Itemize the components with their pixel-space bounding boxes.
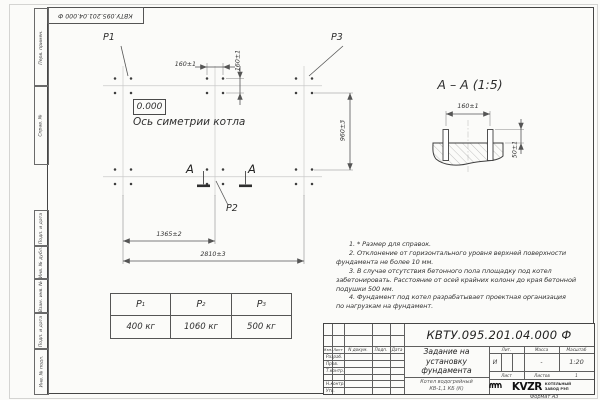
scale-label: Масштаб: [559, 346, 594, 353]
load-value-p3: 500 кг: [232, 316, 291, 338]
dim-1365: 1365±2: [139, 231, 199, 238]
col-podp: Подп.: [372, 346, 390, 353]
section-title: А – А (1:5): [430, 77, 510, 92]
margin-stamp-sprav-n: Справ. №: [34, 85, 49, 165]
load-point-p3-label: P3: [331, 32, 343, 43]
dim-960: 960±3: [340, 117, 347, 145]
document-title: Задание на установку фундамента: [404, 346, 489, 377]
load-table-header-row: P1 P2 P3: [111, 294, 291, 316]
load-point-p2-label: P2: [226, 203, 238, 214]
row-razrab: Разраб.: [324, 353, 346, 360]
sheet-label: Лист: [489, 371, 524, 379]
col-data: Дата: [390, 346, 404, 353]
load-point-p1-label: P1: [103, 32, 115, 43]
cut-letter-right: А: [248, 162, 256, 176]
cut-letter-left: А: [186, 162, 194, 176]
company-logo: KVZR КОТЕЛЬНЫЙ ЗАВОД РЭП: [489, 379, 594, 394]
margin-stamp-inv-dubl: Инв. № дубл.: [34, 245, 49, 280]
kvzr-logo-text: KVZR: [512, 381, 542, 393]
symmetry-axis-label: Ось симетрии котла: [133, 116, 245, 128]
sheets-label: Листов: [527, 371, 557, 379]
kvzr-spring-icon: [489, 379, 502, 389]
title-block: КВТУ.095.201.04.000 Ф Изм. Лист N докум.…: [323, 323, 595, 395]
format-note: Формат А3: [530, 394, 558, 400]
note-line: фундамента не более 10 мм.: [336, 258, 593, 267]
top-designation-text: КВТУ.095.201.04.000 Ф: [58, 12, 133, 19]
scale-value: 1:20: [559, 353, 594, 371]
load-table-header-p2: P2: [171, 294, 231, 316]
row-utv: Утв.: [324, 387, 346, 394]
section-dim-160: 160±1: [438, 103, 498, 110]
note-line: по нагрузкам на фундамент.: [336, 302, 593, 311]
load-table: P1 P2 P3 400 кг 1060 кг 500 кг: [110, 293, 292, 339]
row-n-kontr: Н.контр.: [324, 380, 346, 387]
load-table-header-p1: P1: [111, 294, 171, 316]
row-t-kontr: Т.контр.: [324, 367, 346, 374]
load-value-p2: 1060 кг: [171, 316, 231, 338]
margin-stamp-podp-data-2: Подп. и дата: [34, 312, 49, 350]
load-table-value-row: 400 кг 1060 кг 500 кг: [111, 316, 291, 338]
mass-value: -: [524, 353, 559, 371]
load-value-p1: 400 кг: [111, 316, 171, 338]
margin-stamp-perv-primen: Перв. примен.: [34, 8, 49, 87]
margin-stamp-vzam-inv: Взам. инв. №: [34, 278, 49, 314]
elevation-marker: 0.000: [133, 99, 166, 115]
note-line: 4. Фундамент под котел разрабатывает про…: [336, 293, 593, 302]
dim-2810: 2810±3: [183, 251, 243, 258]
col-list: Лист: [332, 346, 344, 353]
top-designation-stamp: КВТУ.095.201.04.000 Ф: [47, 7, 144, 24]
col-n-doc: N докум.: [344, 346, 372, 353]
lit-label: Лит.: [489, 346, 524, 353]
load-table-header-p3: P3: [232, 294, 291, 316]
dim-160-vertical: 160±1: [235, 49, 242, 73]
sheets-value: 1: [569, 371, 584, 379]
mass-label: Масса: [524, 346, 559, 353]
drawing-sheet: КВТУ.095.201.04.000 Ф Перв. примен. Спра…: [0, 0, 600, 400]
lit-value: И: [489, 353, 501, 371]
note-line: 1. * Размер для справок.: [336, 240, 593, 249]
margin-stamp-podp-data-1: Подп. и дата: [34, 210, 49, 247]
dim-160-horizontal: 160±1: [168, 61, 196, 68]
product-name: Котел водогрейный КВ-1,1 КБ (К): [404, 377, 489, 394]
note-line: подушки 500 мм.: [336, 285, 593, 294]
col-izm: Изм.: [324, 346, 332, 353]
margin-stamp-inv-podl: Инв. № подл.: [34, 348, 49, 395]
title-block-designation: КВТУ.095.201.04.000 Ф: [404, 324, 594, 346]
note-line: забетонировать. Расстояние от осей крайн…: [336, 276, 593, 285]
section-dim-50: 50±1: [512, 138, 519, 162]
row-prov: Пров.: [324, 360, 346, 367]
note-line: 2. Отклонение от горизонтального уровня …: [336, 249, 593, 258]
kvzr-logo-caption: КОТЕЛЬНЫЙ ЗАВОД РЭП: [545, 382, 571, 391]
note-line: 3. В случае отсутствия бетонного пола пл…: [336, 267, 593, 276]
technical-notes: 1. * Размер для справок. 2. Отклонение о…: [336, 240, 593, 311]
